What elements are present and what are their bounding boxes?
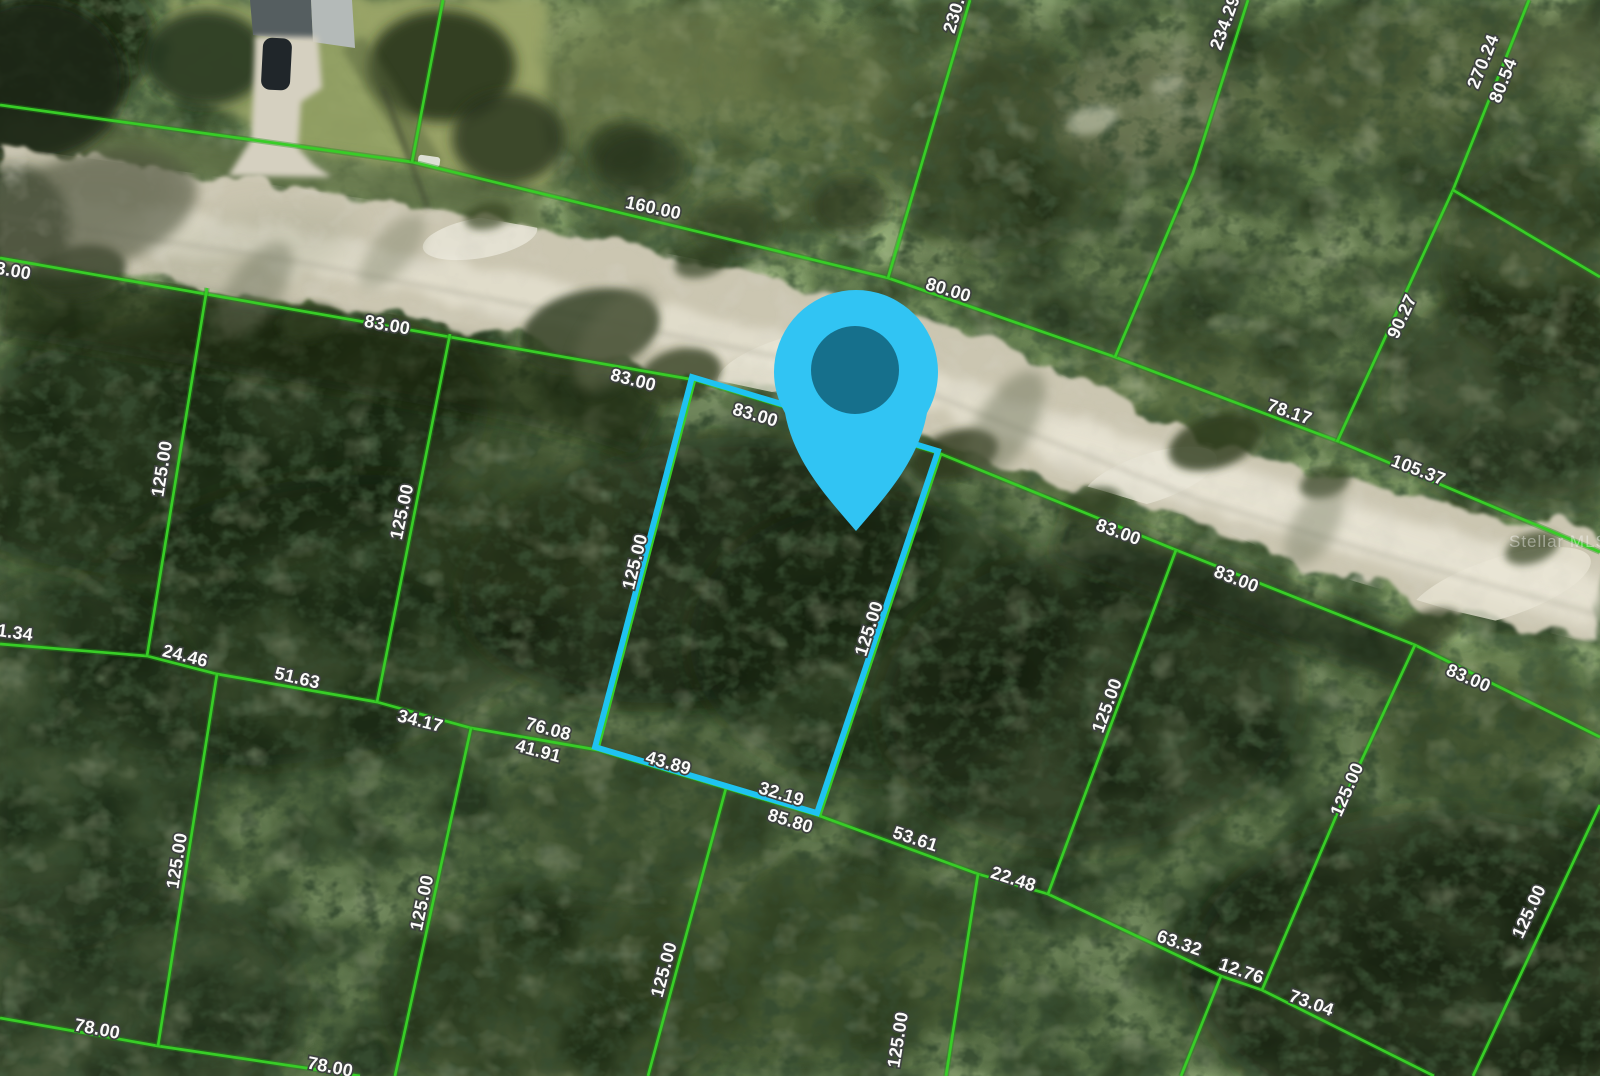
svg-text:Stellar MLS: Stellar MLS xyxy=(1509,532,1600,551)
